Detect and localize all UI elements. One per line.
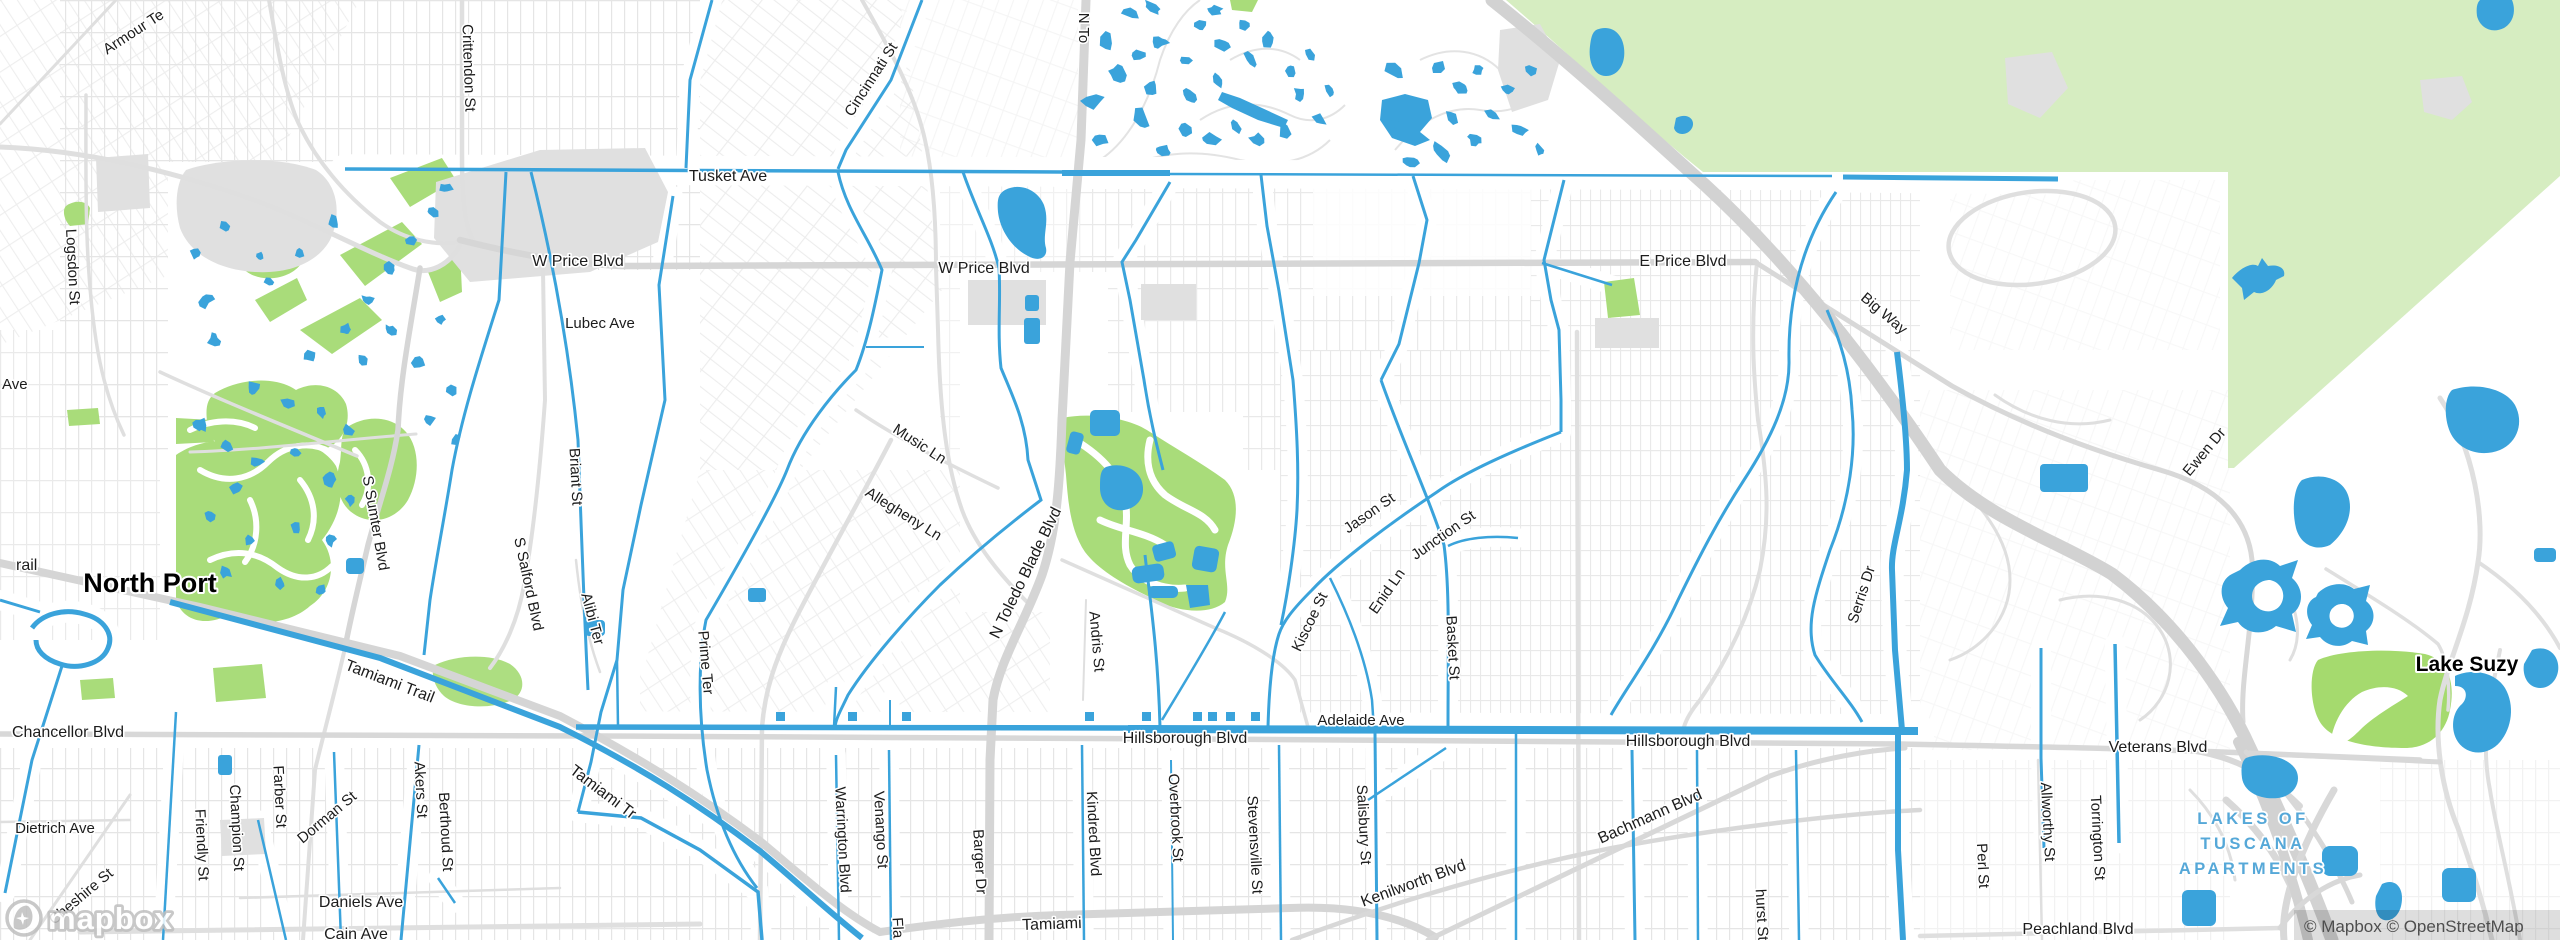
svg-text:Hillsborough Blvd: Hillsborough Blvd <box>1626 733 1751 750</box>
svg-text:Barger Dr: Barger Dr <box>969 829 989 895</box>
svg-text:Lake Suzy: Lake Suzy <box>2416 653 2519 676</box>
svg-text:Daniels Ave: Daniels Ave <box>319 894 403 911</box>
svg-text:E Price Blvd: E Price Blvd <box>1639 253 1726 270</box>
svg-text:TUSCANA: TUSCANA <box>2200 835 2305 853</box>
svg-text:Adelaide Ave: Adelaide Ave <box>1317 712 1404 729</box>
svg-text:Hillsborough Blvd: Hillsborough Blvd <box>1123 730 1248 747</box>
svg-text:Ave: Ave <box>2 376 28 393</box>
svg-text:W Price Blvd: W Price Blvd <box>938 260 1030 277</box>
svg-text:mapbox: mapbox <box>48 901 173 936</box>
svg-text:Crittendon St: Crittendon St <box>458 24 478 113</box>
svg-text:Fla: Fla <box>888 917 906 939</box>
svg-text:Veterans Blvd: Veterans Blvd <box>2109 739 2208 756</box>
svg-text:Perl St: Perl St <box>1973 843 1992 890</box>
svg-text:Akers St: Akers St <box>411 761 431 819</box>
svg-text:hurst St: hurst St <box>1752 889 1772 940</box>
svg-text:Cain Ave: Cain Ave <box>324 926 388 940</box>
svg-text:Chancellor Blvd: Chancellor Blvd <box>12 724 124 741</box>
svg-text:Tusket Ave: Tusket Ave <box>689 168 767 185</box>
svg-text:Tamiami: Tamiami <box>1022 915 1082 934</box>
svg-text:Farber St: Farber St <box>269 765 289 829</box>
svg-text:Dietrich Ave: Dietrich Ave <box>15 820 95 837</box>
svg-text:Briant St: Briant St <box>566 448 586 507</box>
svg-text:LAKES OF: LAKES OF <box>2197 810 2308 828</box>
svg-text:Basket St: Basket St <box>1442 615 1462 681</box>
svg-text:Lubec Ave: Lubec Ave <box>565 315 635 332</box>
svg-text:W Price Blvd: W Price Blvd <box>532 253 624 270</box>
svg-text:© Mapbox © OpenStreetMap: © Mapbox © OpenStreetMap <box>2304 917 2524 936</box>
svg-text:N To: N To <box>1075 13 1092 44</box>
svg-text:Peachland Blvd: Peachland Blvd <box>2022 921 2133 938</box>
svg-text:APARTMENTS: APARTMENTS <box>2179 860 2327 878</box>
svg-text:rail: rail <box>16 557 37 574</box>
svg-text:North Port: North Port <box>83 568 216 598</box>
